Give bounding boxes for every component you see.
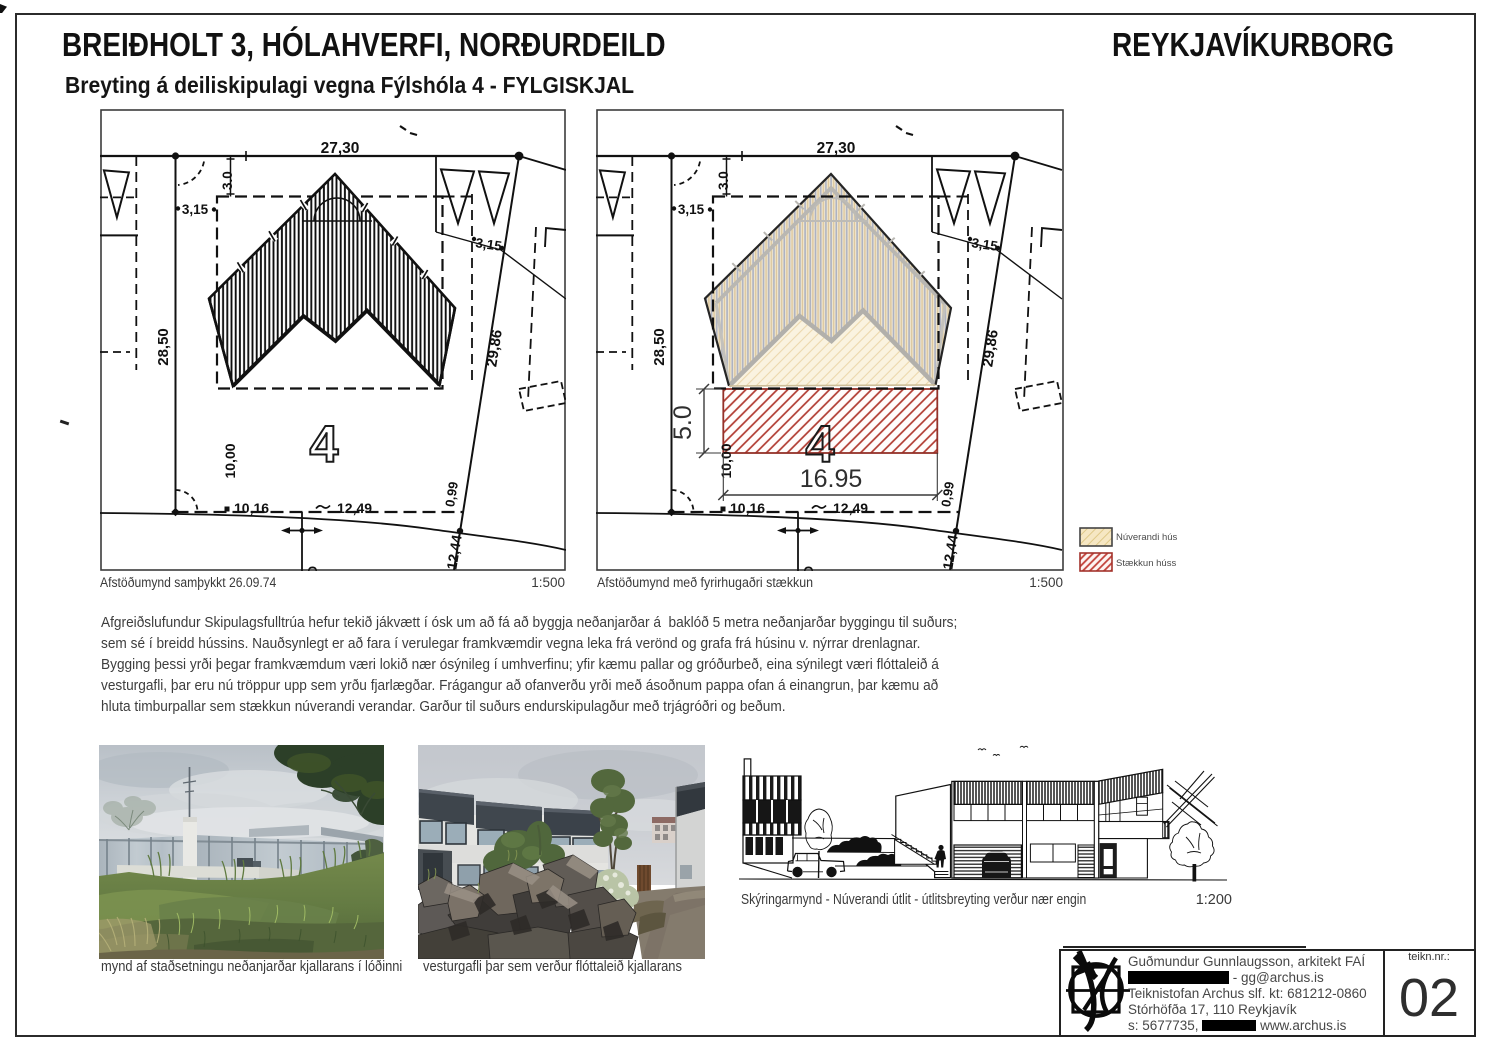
svg-text:5.0: 5.0: [669, 405, 697, 440]
svg-text:4: 4: [806, 416, 835, 474]
svg-text:4: 4: [310, 416, 339, 474]
